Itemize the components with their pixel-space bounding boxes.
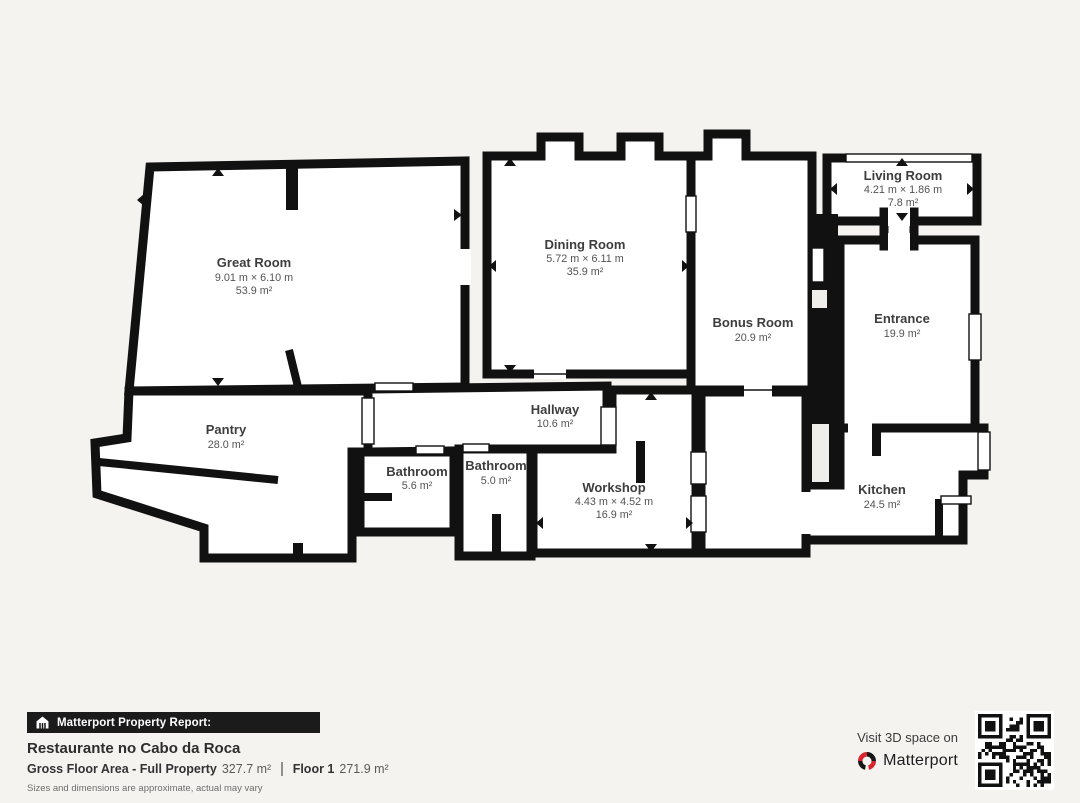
room-area: 16.9 m² (596, 509, 633, 521)
floor-value: 271.9 m² (339, 762, 388, 776)
window (362, 398, 374, 444)
room-name: Entrance (874, 311, 930, 326)
room-area: 28.0 m² (208, 439, 245, 451)
wall-stub (286, 162, 298, 210)
gross-floor-area-value: 327.7 m² (222, 762, 271, 776)
door-opening (798, 492, 814, 534)
room-name: Pantry (206, 422, 247, 437)
gross-floor-area-label: Gross Floor Area - Full Property (27, 762, 217, 776)
window (941, 496, 971, 504)
window (375, 383, 413, 391)
room-name: Hallway (531, 402, 580, 417)
room-area: 19.9 m² (884, 328, 921, 340)
window (691, 452, 706, 484)
floor-label: Floor 1 (293, 762, 335, 776)
room-name: Bathroom (386, 464, 447, 479)
property-name: Restaurante no Cabo da Roca (27, 740, 240, 757)
room-dimensions: 5.72 m × 6.11 m (546, 253, 624, 265)
window (812, 248, 824, 282)
room-name: Dining Room (545, 237, 626, 252)
door-opening (888, 233, 910, 252)
wall-stub (492, 514, 501, 558)
report-header-bar: Matterport Property Report: (27, 712, 320, 733)
room-area: 5.0 m² (481, 475, 512, 487)
window (969, 314, 981, 360)
disclaimer-text: Sizes and dimensions are approximate, ac… (27, 783, 263, 794)
door-opening (848, 423, 872, 433)
wall-stub (872, 424, 881, 456)
window (601, 407, 616, 445)
report-header-label: Matterport Property Report: (57, 717, 211, 729)
room-name: Kitchen (858, 482, 906, 497)
matterport-logo-icon (857, 751, 877, 771)
door-opening (459, 249, 471, 285)
room-area: 53.9 m² (236, 285, 273, 297)
window (686, 196, 696, 232)
floor-area-stats: Gross Floor Area - Full Property 327.7 m… (27, 762, 389, 776)
room-area: 35.9 m² (567, 266, 604, 278)
room-area: 5.6 m² (402, 480, 433, 492)
qr-code (975, 711, 1054, 790)
room-area: 10.6 m² (537, 418, 574, 430)
window (463, 444, 489, 452)
wall-stub (636, 441, 645, 483)
visit-text: Visit 3D space on (822, 730, 958, 745)
room-name: Workshop (582, 480, 645, 495)
room-area: 7.8 m² (888, 197, 919, 209)
wall-niche (812, 424, 829, 482)
corridor-shape (701, 392, 806, 553)
visit-3d-cta: Visit 3D space on Matterport (822, 730, 958, 771)
building-icon (36, 716, 49, 729)
window (846, 154, 972, 162)
floor-plan: Great Room 9.01 m × 6.10 m 53.9 m² Dinin… (0, 0, 1080, 803)
room-area: 24.5 m² (864, 499, 901, 511)
wall-niche (812, 290, 827, 308)
wall-stub (293, 543, 303, 560)
room-area: 20.9 m² (735, 332, 772, 344)
room-name: Bathroom (465, 458, 526, 473)
room-name: Bonus Room (713, 315, 794, 330)
window (416, 446, 444, 454)
bonus-room-shape (691, 134, 812, 390)
dimension-arrow-left (137, 194, 144, 206)
divider (281, 762, 283, 776)
window (978, 432, 990, 470)
matterport-wordmark: Matterport (883, 752, 958, 770)
room-name: Great Room (217, 255, 291, 270)
room-dimensions: 4.21 m × 1.86 m (864, 184, 942, 196)
room-dimensions: 9.01 m × 6.10 m (215, 272, 293, 284)
room-dimensions: 4.43 m × 4.52 m (575, 496, 653, 508)
room-name: Living Room (864, 168, 943, 183)
window (691, 496, 706, 532)
